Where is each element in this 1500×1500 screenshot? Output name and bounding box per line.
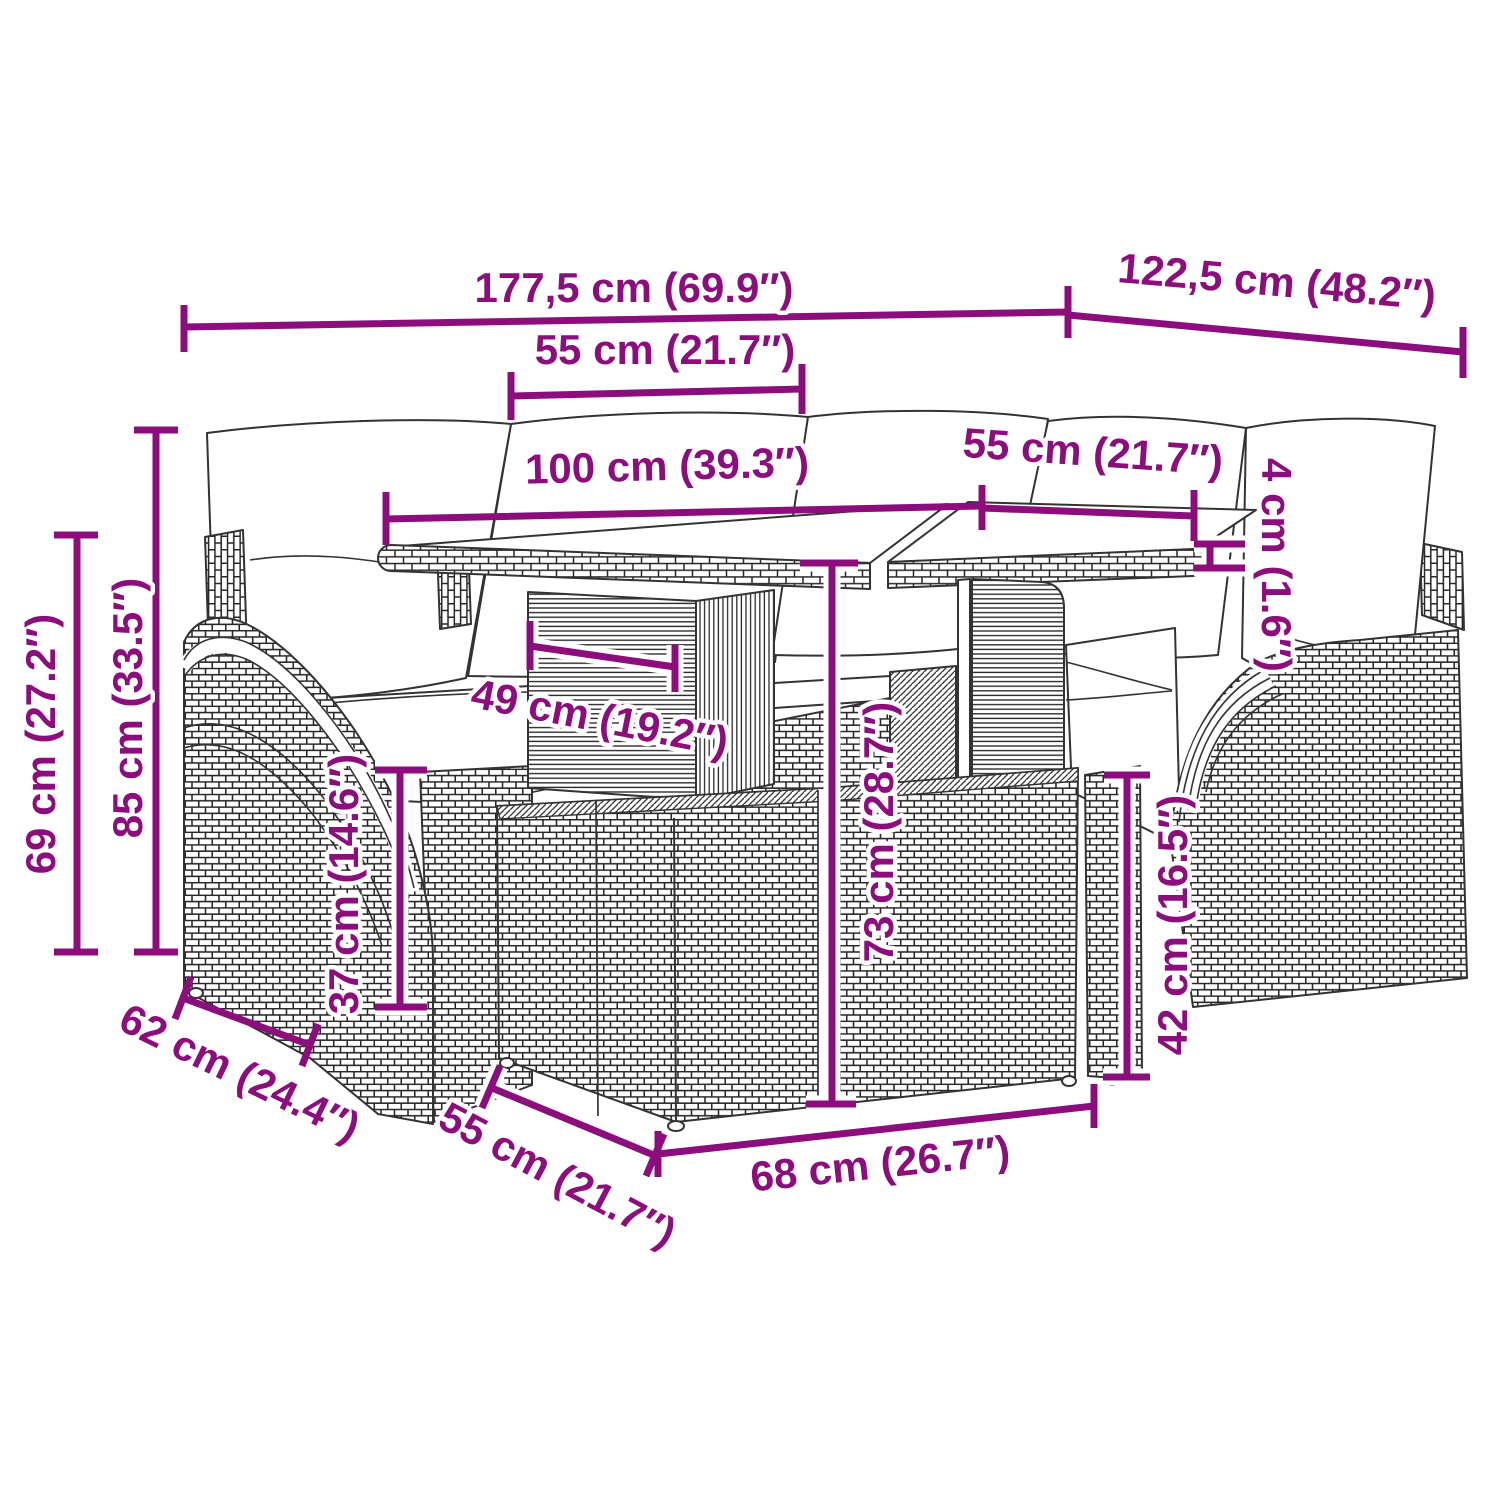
svg-text:55 cm (21.7″): 55 cm (21.7″): [535, 326, 796, 373]
svg-text:4 cm (1.6″): 4 cm (1.6″): [1253, 458, 1300, 672]
svg-text:37 cm (14.6″): 37 cm (14.6″): [320, 754, 367, 1015]
svg-text:85 cm (33.5″): 85 cm (33.5″): [104, 578, 151, 839]
svg-text:100 cm (39.3″): 100 cm (39.3″): [524, 438, 809, 492]
svg-text:177,5 cm (69.9″): 177,5 cm (69.9″): [475, 264, 794, 311]
svg-text:69 cm (27.2″): 69 cm (27.2″): [17, 614, 64, 875]
svg-text:73 cm (28.7″): 73 cm (28.7″): [855, 702, 902, 963]
svg-text:42 cm (16.5″): 42 cm (16.5″): [1149, 795, 1196, 1056]
